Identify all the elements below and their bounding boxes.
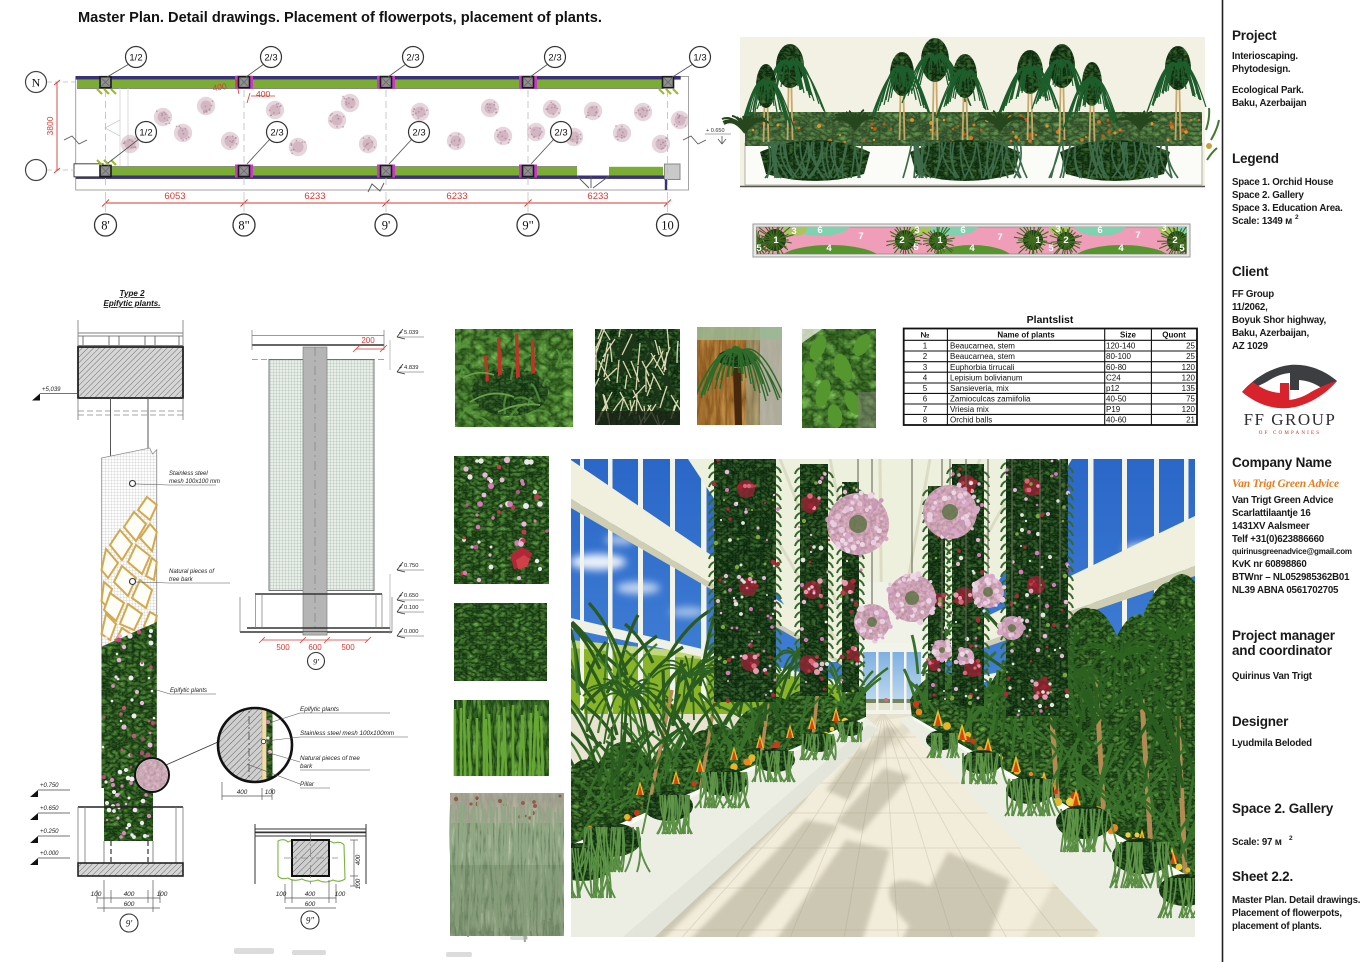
svg-text:6233: 6233 <box>587 191 608 202</box>
svg-text:quirinusgreenadvice@gmail.com: quirinusgreenadvice@gmail.com <box>1232 547 1352 556</box>
svg-text:Sheet 2.2.: Sheet 2.2. <box>1232 869 1293 884</box>
svg-text:100: 100 <box>355 878 362 889</box>
svg-text:Client: Client <box>1232 264 1269 279</box>
svg-text:6233: 6233 <box>304 191 325 202</box>
svg-text:4: 4 <box>1118 243 1124 254</box>
svg-text:and coordinator: and coordinator <box>1232 643 1333 658</box>
svg-text:1: 1 <box>1035 235 1041 246</box>
svg-text:3: 3 <box>1055 224 1060 235</box>
svg-text:6: 6 <box>960 225 965 236</box>
svg-text:5: 5 <box>756 243 762 254</box>
svg-text:2: 2 <box>899 235 904 246</box>
svg-text:60-80: 60-80 <box>1106 363 1127 372</box>
svg-text:2/3: 2/3 <box>548 52 561 63</box>
svg-text:7: 7 <box>997 232 1002 243</box>
svg-text:Lepisium bolivianum: Lepisium bolivianum <box>950 373 1023 382</box>
svg-text:Vriesia mix: Vriesia mix <box>950 405 989 414</box>
svg-text:Quont: Quont <box>1162 330 1186 339</box>
svg-text:1/3: 1/3 <box>693 52 706 63</box>
svg-text:25: 25 <box>1186 342 1195 351</box>
svg-text:bark: bark <box>300 763 313 770</box>
svg-text:2/3: 2/3 <box>406 52 419 63</box>
svg-text:400: 400 <box>212 81 228 93</box>
svg-text:21: 21 <box>1186 416 1195 425</box>
svg-text:75: 75 <box>1186 395 1195 404</box>
svg-text:Space 2. Gallery: Space 2. Gallery <box>1232 190 1304 201</box>
svg-text:Euphorbia tirrucali: Euphorbia tirrucali <box>950 363 1015 372</box>
svg-text:OF COMPANIES: OF COMPANIES <box>1259 431 1321 436</box>
svg-text:p12: p12 <box>1106 384 1120 393</box>
svg-text:Scale: 97 м: Scale: 97 м <box>1232 837 1282 848</box>
svg-text:BTWnr – NL052985362B01: BTWnr – NL052985362B01 <box>1232 572 1350 583</box>
svg-text:5: 5 <box>1179 243 1185 254</box>
svg-text:7: 7 <box>923 405 928 414</box>
svg-text:Epifytic plants.: Epifytic plants. <box>104 299 161 308</box>
svg-text:Space 2. Gallery: Space 2. Gallery <box>1232 801 1334 816</box>
svg-text:4: 4 <box>826 243 832 254</box>
svg-text:80-100: 80-100 <box>1106 352 1131 361</box>
svg-text:+0.250: +0.250 <box>40 829 59 835</box>
svg-text:1/2: 1/2 <box>129 52 142 63</box>
svg-text:4: 4 <box>969 243 975 254</box>
svg-text:Designer: Designer <box>1232 714 1289 729</box>
svg-text:4: 4 <box>923 373 928 382</box>
svg-text:Interioscaping.: Interioscaping. <box>1232 51 1298 62</box>
svg-text:Company Name: Company Name <box>1232 455 1332 470</box>
svg-text:100: 100 <box>157 891 168 898</box>
svg-text:Van Trigt Green Advice: Van Trigt Green Advice <box>1232 495 1334 506</box>
svg-text:+0.650: +0.650 <box>40 806 59 812</box>
svg-text:Baku, Azerbaijan,: Baku, Azerbaijan, <box>1232 328 1310 339</box>
svg-text:600: 600 <box>305 901 316 908</box>
svg-text:2: 2 <box>1295 214 1299 221</box>
svg-text:3: 3 <box>914 225 919 236</box>
svg-text:Sansieveria, mix: Sansieveria, mix <box>950 384 1009 393</box>
svg-text:200: 200 <box>361 336 375 345</box>
svg-text:Beaucarnea, stem: Beaucarnea, stem <box>950 352 1015 361</box>
svg-text:120: 120 <box>1182 405 1196 414</box>
svg-text:Project: Project <box>1232 28 1277 43</box>
svg-text:Epifytic plants: Epifytic plants <box>300 706 340 713</box>
svg-text:100: 100 <box>335 891 346 898</box>
svg-text:1: 1 <box>773 235 779 246</box>
svg-text:Type 2: Type 2 <box>119 289 145 298</box>
svg-text:1431XV Aalsmeer: 1431XV Aalsmeer <box>1232 521 1310 532</box>
svg-text:+0.000: +0.000 <box>40 851 59 857</box>
svg-text:+ 0.650: + 0.650 <box>706 128 725 134</box>
svg-text:Lyudmila Beloded: Lyudmila Beloded <box>1232 738 1312 749</box>
svg-text:5: 5 <box>1048 243 1054 254</box>
svg-text:placement of plants.: placement of plants. <box>1232 921 1322 932</box>
svg-text:Epifytic plants: Epifytic plants <box>170 688 207 694</box>
svg-text:2/3: 2/3 <box>554 127 567 138</box>
svg-text:9": 9" <box>522 219 533 233</box>
svg-text:7: 7 <box>1135 230 1140 241</box>
svg-text:3: 3 <box>1161 223 1166 234</box>
svg-text:40-50: 40-50 <box>1106 395 1127 404</box>
svg-text:120-140: 120-140 <box>1106 342 1136 351</box>
svg-text:25: 25 <box>1186 352 1195 361</box>
svg-text:Orchid balls: Orchid balls <box>950 416 992 425</box>
svg-text:120: 120 <box>1182 373 1196 382</box>
svg-text:Size: Size <box>1120 330 1137 339</box>
svg-text:mesh 100x100 mm: mesh 100x100 mm <box>169 479 220 485</box>
svg-text:Boyuk Shor highway,: Boyuk Shor highway, <box>1232 315 1326 326</box>
svg-text:P19: P19 <box>1106 405 1121 414</box>
svg-text:+5,039: +5,039 <box>42 387 61 393</box>
svg-text:400: 400 <box>256 89 270 99</box>
svg-text:6053: 6053 <box>164 191 185 202</box>
svg-text:Space 3. Education Area.: Space 3. Education Area. <box>1232 203 1343 214</box>
svg-text:Baku, Azerbaijan: Baku, Azerbaijan <box>1232 98 1307 109</box>
svg-text:6: 6 <box>817 225 822 236</box>
svg-text:Phytodesign.: Phytodesign. <box>1232 64 1291 75</box>
svg-text:Stainless steel: Stainless steel <box>169 471 208 477</box>
svg-text:400: 400 <box>305 891 316 898</box>
svg-text:400: 400 <box>355 854 362 865</box>
svg-text:9": 9" <box>306 916 315 926</box>
svg-text:7: 7 <box>858 231 863 242</box>
svg-text:2: 2 <box>1289 835 1293 842</box>
svg-text:Scarlattilaantje 16: Scarlattilaantje 16 <box>1232 508 1311 519</box>
svg-text:Quirinus Van Trigt: Quirinus Van Trigt <box>1232 671 1313 682</box>
svg-text:Stainless steel mesh 100x100mm: Stainless steel mesh 100x100mm <box>300 730 394 737</box>
svg-text:Natural pieces of tree: Natural pieces of tree <box>300 755 360 762</box>
svg-text:№: № <box>921 330 930 339</box>
svg-text:500: 500 <box>276 643 290 652</box>
svg-text:N: N <box>32 76 41 90</box>
svg-text:Telf +31(0)623886660: Telf +31(0)623886660 <box>1232 534 1324 545</box>
svg-text:Beaucarnea, stem: Beaucarnea, stem <box>950 342 1015 351</box>
svg-text:120: 120 <box>1182 363 1196 372</box>
svg-text:Van Trigt Green Advice: Van Trigt Green Advice <box>1232 478 1339 490</box>
svg-text:8: 8 <box>923 416 928 425</box>
svg-text:6: 6 <box>923 395 928 404</box>
svg-text:2: 2 <box>923 352 928 361</box>
svg-text:8': 8' <box>101 219 110 233</box>
svg-text:Master Plan. Detail drawings.: Master Plan. Detail drawings. Placement … <box>78 10 602 26</box>
svg-text:2/3: 2/3 <box>270 127 283 138</box>
svg-text:tree bark: tree bark <box>169 577 194 583</box>
svg-text:10: 10 <box>661 219 674 233</box>
svg-text:Scale: 1349 м: Scale: 1349 м <box>1232 216 1292 227</box>
svg-text:+0.750: +0.750 <box>40 783 59 789</box>
svg-text:2/3: 2/3 <box>412 127 425 138</box>
svg-text:2/3: 2/3 <box>264 52 277 63</box>
svg-text:Placement of flowerpots,: Placement of flowerpots, <box>1232 908 1342 919</box>
svg-text:6: 6 <box>1097 225 1102 236</box>
svg-text:5: 5 <box>923 384 928 393</box>
svg-text:FF Group: FF Group <box>1232 289 1274 300</box>
svg-text:400: 400 <box>124 891 135 898</box>
svg-text:3800: 3800 <box>45 116 55 135</box>
svg-text:Pillar: Pillar <box>300 781 315 788</box>
svg-text:Project manager: Project manager <box>1232 628 1336 643</box>
svg-text:Legend: Legend <box>1232 151 1279 166</box>
svg-text:135: 135 <box>1182 384 1196 393</box>
svg-text:9': 9' <box>313 657 319 667</box>
svg-text:NL39 ABNA 0561702705: NL39 ABNA 0561702705 <box>1232 585 1339 596</box>
svg-text:1/2: 1/2 <box>139 127 152 138</box>
svg-text:Name of plants: Name of plants <box>997 330 1055 339</box>
svg-text:9': 9' <box>382 219 391 233</box>
svg-text:C24: C24 <box>1106 373 1121 382</box>
svg-text:Master Plan. Detail drawings.: Master Plan. Detail drawings. <box>1232 895 1360 906</box>
svg-text:3: 3 <box>923 363 928 372</box>
svg-text:2: 2 <box>1172 235 1177 246</box>
svg-text:100: 100 <box>265 789 276 796</box>
svg-text:KvK nr 60898860: KvK nr 60898860 <box>1232 559 1307 570</box>
svg-text:500: 500 <box>341 643 355 652</box>
svg-text:6233: 6233 <box>446 191 467 202</box>
svg-text:9': 9' <box>126 919 134 929</box>
svg-text:Plantslist: Plantslist <box>1027 314 1074 326</box>
svg-text:Ecological Park.: Ecological Park. <box>1232 85 1304 96</box>
svg-text:Natural pieces of: Natural pieces of <box>169 569 215 575</box>
svg-text:400: 400 <box>237 789 248 796</box>
svg-text:Space 1. Orchid House: Space 1. Orchid House <box>1232 177 1334 188</box>
svg-text:100: 100 <box>91 891 102 898</box>
svg-text:AZ 1029: AZ 1029 <box>1232 341 1269 352</box>
svg-text:600: 600 <box>124 901 135 908</box>
svg-text:11/2062,: 11/2062, <box>1232 302 1268 313</box>
svg-text:5: 5 <box>913 242 919 253</box>
svg-text:600: 600 <box>308 643 322 652</box>
svg-text:FF GROUP: FF GROUP <box>1244 410 1337 429</box>
svg-text:1: 1 <box>937 235 943 246</box>
svg-text:100: 100 <box>276 891 287 898</box>
svg-text:3: 3 <box>791 226 796 237</box>
svg-text:2: 2 <box>1063 235 1068 246</box>
svg-text:Zamioculcas zamiifolia: Zamioculcas zamiifolia <box>950 395 1031 404</box>
svg-text:40-60: 40-60 <box>1106 416 1127 425</box>
svg-text:8": 8" <box>238 219 249 233</box>
svg-text:1: 1 <box>923 342 928 351</box>
